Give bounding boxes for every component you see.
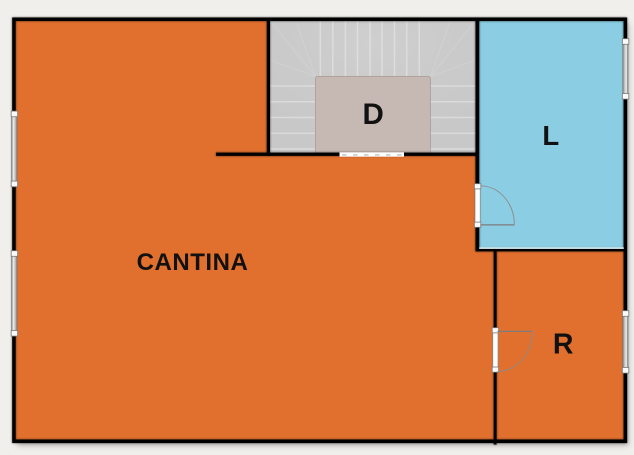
svg-text:L: L <box>542 120 559 151</box>
svg-text:CANTINA: CANTINA <box>137 249 249 276</box>
svg-text:D: D <box>363 98 384 131</box>
svg-text:R: R <box>553 328 574 360</box>
